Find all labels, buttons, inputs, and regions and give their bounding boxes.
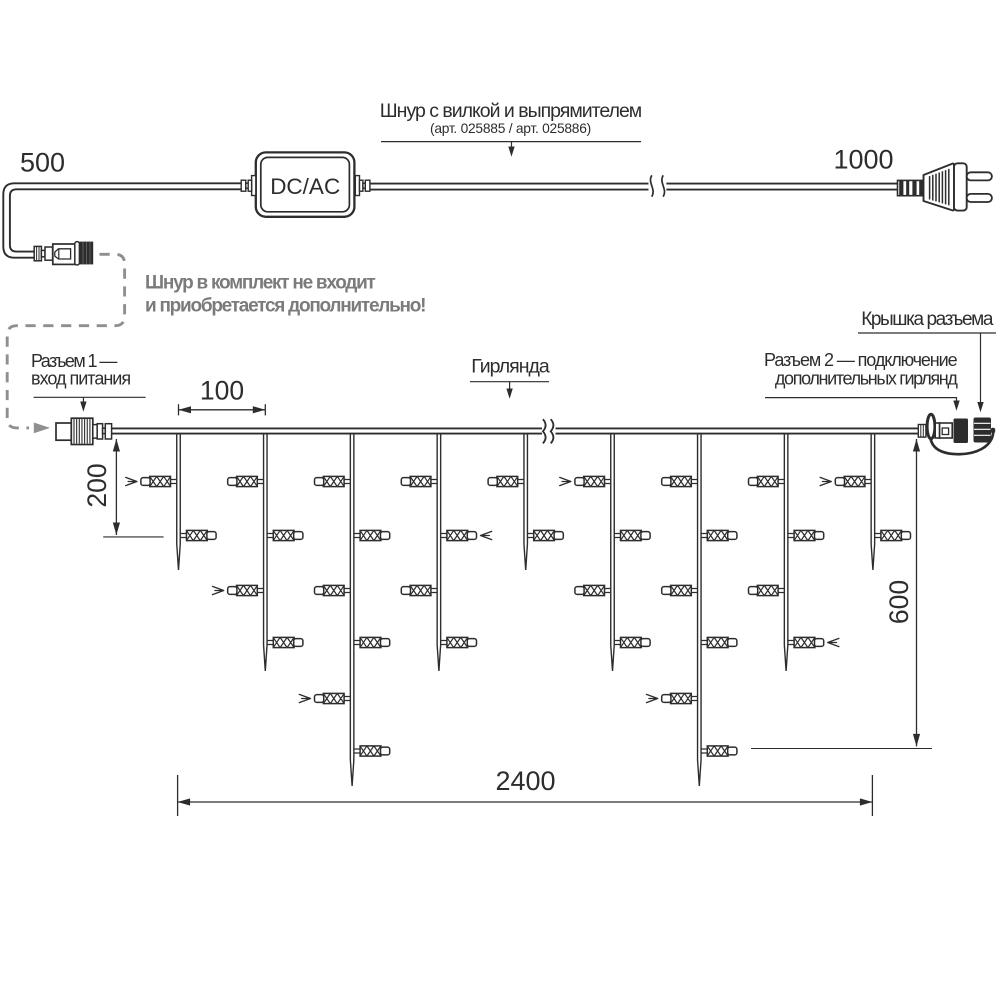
svg-text:вход питания: вход питания — [31, 369, 130, 389]
svg-text:Гирлянда: Гирлянда — [471, 356, 550, 378]
svg-text:1000: 1000 — [833, 145, 893, 175]
svg-text:500: 500 — [20, 148, 65, 178]
svg-text:дополнительных гирлянд: дополнительных гирлянд — [775, 369, 958, 389]
svg-text:200: 200 — [82, 463, 112, 507]
svg-text:DC/AC: DC/AC — [270, 174, 340, 199]
svg-text:100: 100 — [200, 376, 244, 406]
svg-text:600: 600 — [884, 580, 914, 624]
svg-text:(арт. 025885 / арт. 025886): (арт. 025885 / арт. 025886) — [430, 121, 591, 136]
svg-text:Разъем 2 — подключение: Разъем 2 — подключение — [764, 350, 958, 370]
svg-text:2400: 2400 — [495, 766, 555, 796]
svg-text:Шнур в комплект не входит: Шнур в комплект не входит — [145, 273, 376, 294]
svg-text:Шнур с вилкой и выпрямителем: Шнур с вилкой и выпрямителем — [380, 100, 642, 122]
svg-text:и приобретается дополнительно!: и приобретается дополнительно! — [145, 296, 425, 317]
svg-text:Крышка разъема: Крышка разъема — [861, 309, 994, 330]
